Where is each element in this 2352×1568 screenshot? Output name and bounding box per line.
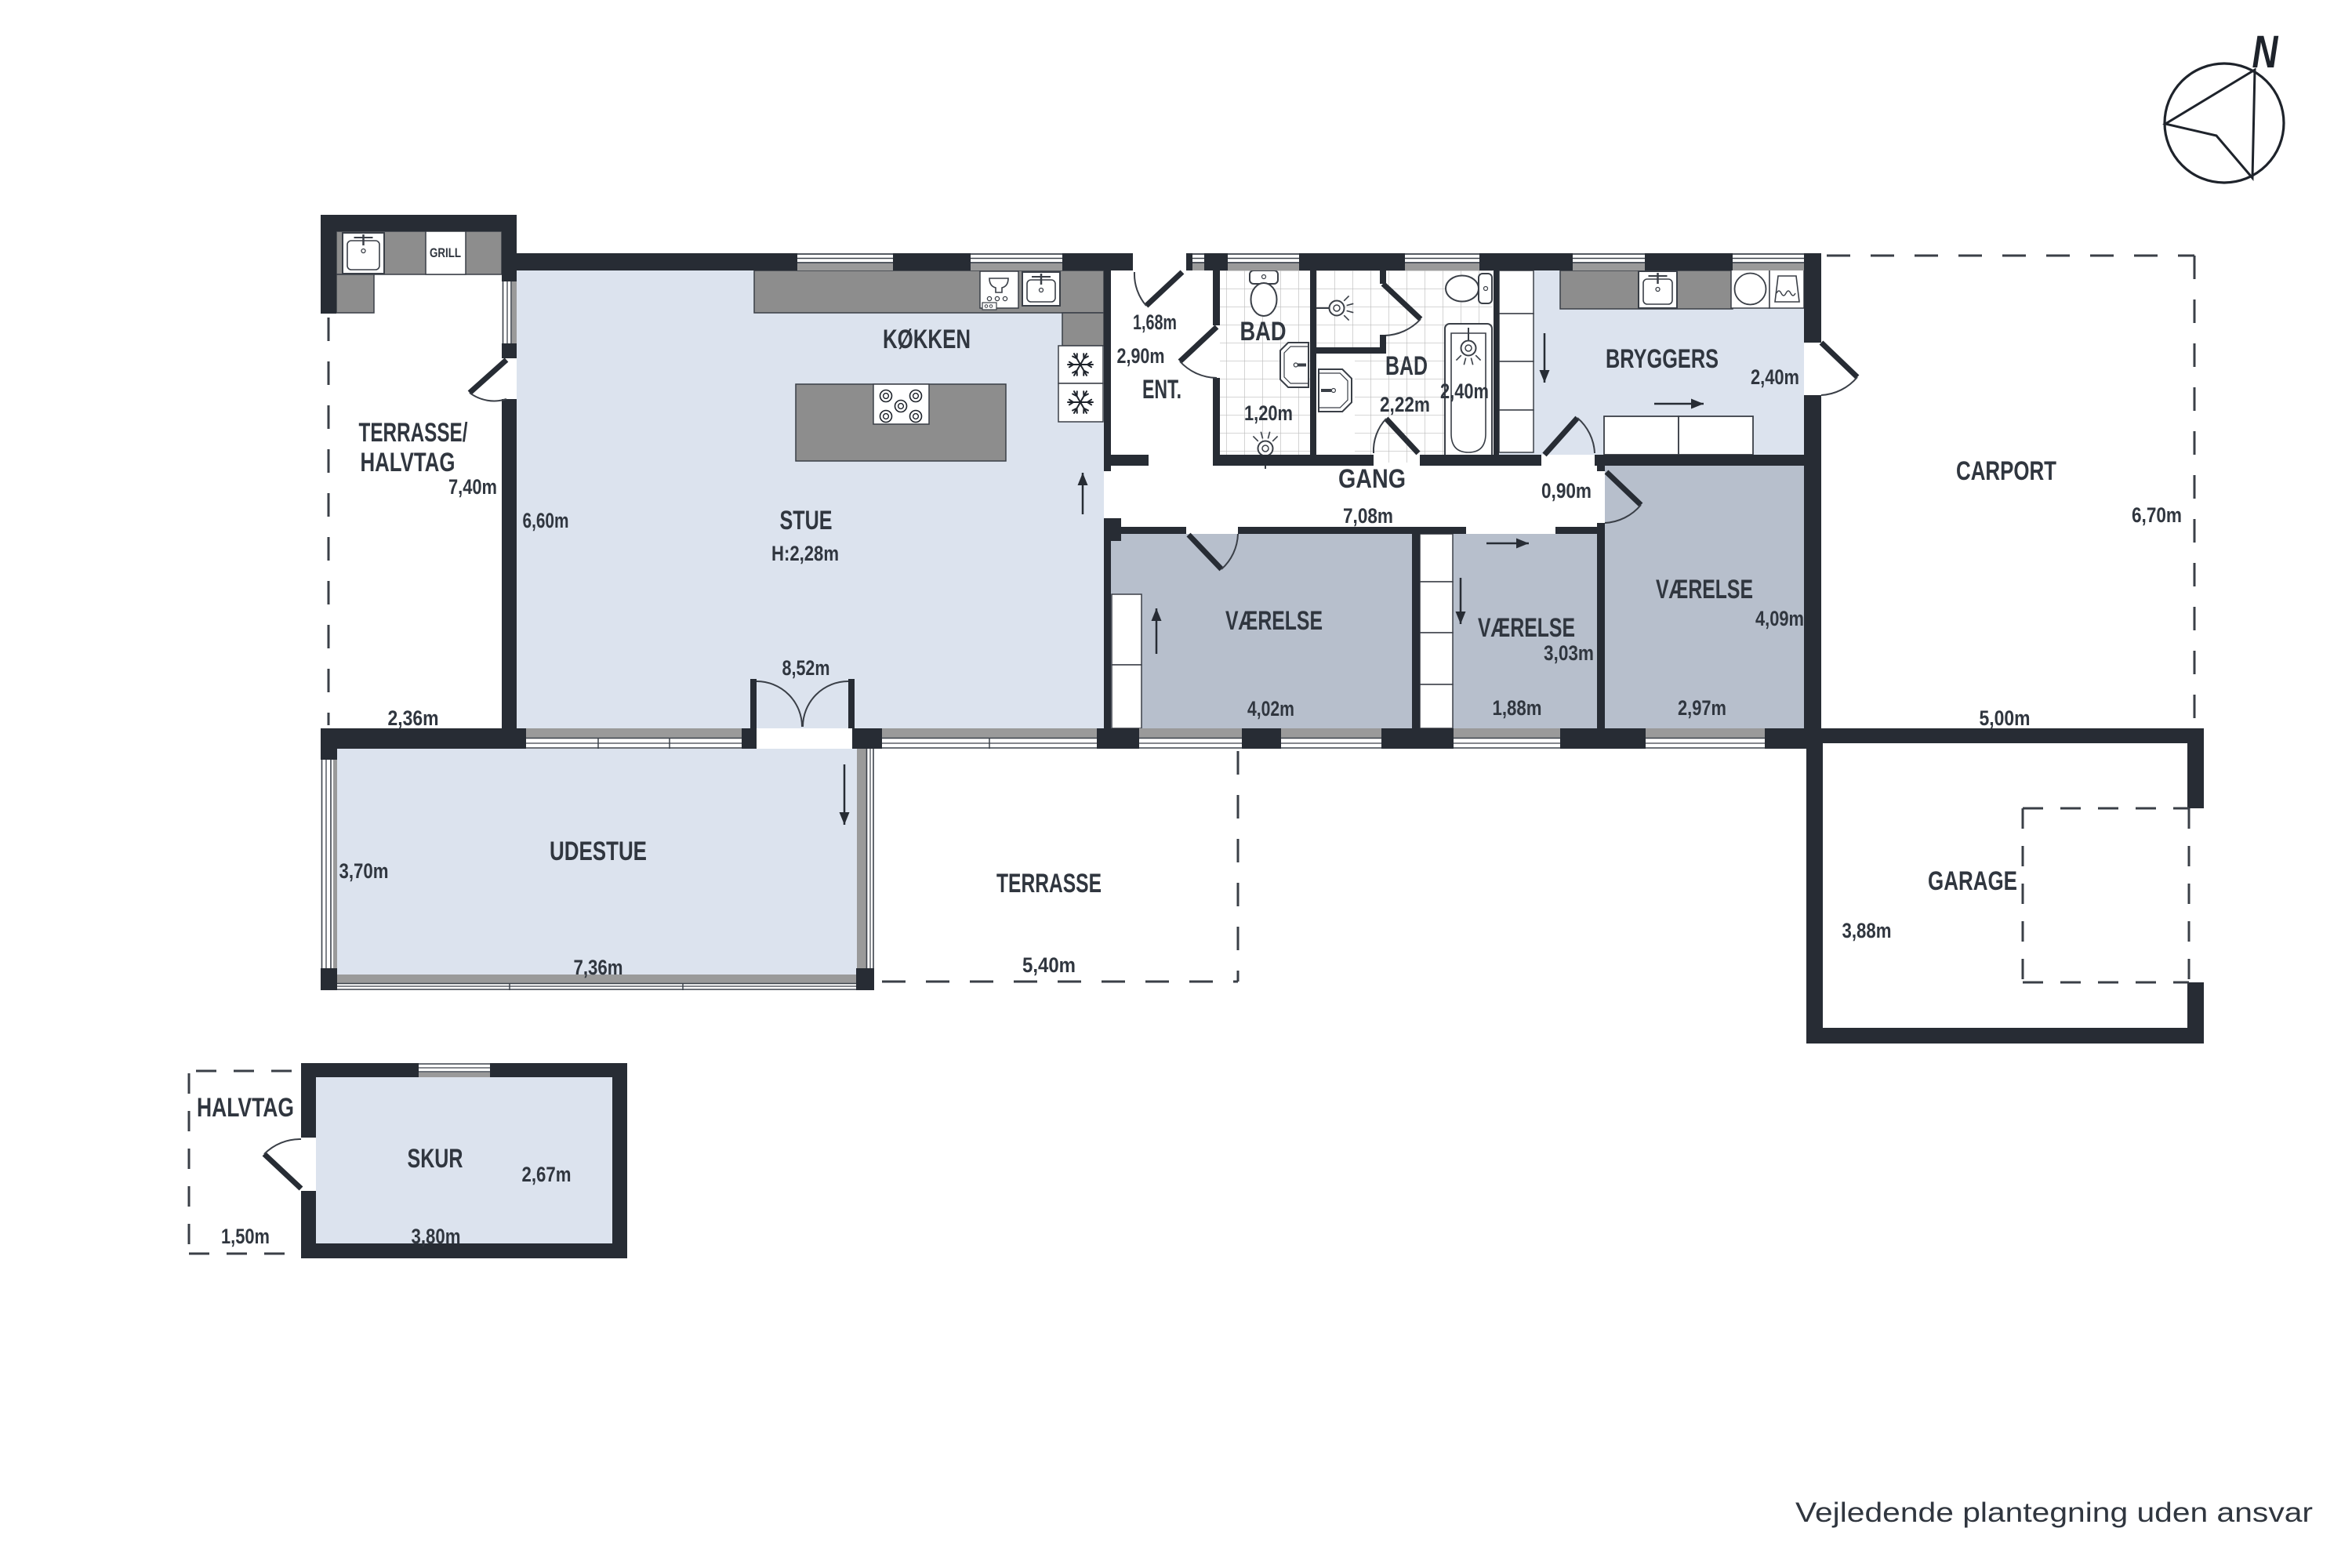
svg-text:3,88m: 3,88m: [1842, 919, 1892, 942]
svg-text:6,60m: 6,60m: [523, 509, 569, 532]
svg-text:6,70m: 6,70m: [2132, 503, 2182, 527]
svg-text:ENT.: ENT.: [1142, 375, 1181, 405]
svg-text:VÆRELSE: VÆRELSE: [1225, 606, 1323, 636]
svg-text:1,88m: 1,88m: [1493, 696, 1542, 720]
svg-text:2,22m: 2,22m: [1380, 393, 1430, 416]
svg-text:HALVTAG: HALVTAG: [361, 448, 456, 477]
svg-text:TERRASSE/: TERRASSE/: [359, 418, 468, 448]
svg-text:BRYGGERS: BRYGGERS: [1606, 344, 1719, 374]
svg-text:UDESTUE: UDESTUE: [550, 837, 647, 866]
svg-text:GANG: GANG: [1338, 464, 1406, 494]
svg-text:N: N: [2252, 27, 2279, 78]
svg-text:KØKKEN: KØKKEN: [883, 325, 971, 354]
svg-text:3,70m: 3,70m: [339, 859, 389, 883]
svg-text:0,90m: 0,90m: [1541, 479, 1592, 503]
svg-text:2,67m: 2,67m: [522, 1163, 572, 1186]
svg-text:4,02m: 4,02m: [1247, 697, 1294, 720]
svg-text:2,40m: 2,40m: [1751, 365, 1799, 389]
svg-text:STUE: STUE: [780, 506, 833, 535]
svg-text:1,20m: 1,20m: [1244, 401, 1293, 425]
svg-text:SKUR: SKUR: [408, 1144, 463, 1174]
svg-text:7,36m: 7,36m: [574, 956, 623, 979]
svg-text:VÆRELSE: VÆRELSE: [1656, 575, 1753, 604]
svg-text:HALVTAG: HALVTAG: [197, 1093, 294, 1123]
svg-text:5,00m: 5,00m: [1980, 706, 2031, 730]
svg-text:5,40m: 5,40m: [1022, 953, 1076, 977]
svg-text:TERRASSE: TERRASSE: [996, 869, 1102, 898]
svg-text:2,90m: 2,90m: [1117, 344, 1165, 368]
svg-text:BAD: BAD: [1385, 351, 1428, 381]
svg-text:2,97m: 2,97m: [1678, 696, 1726, 720]
svg-text:CARPORT: CARPORT: [1956, 456, 2056, 486]
svg-text:7,08m: 7,08m: [1343, 504, 1393, 528]
svg-text:8,52m: 8,52m: [782, 656, 830, 680]
svg-text:H:2,28m: H:2,28m: [771, 542, 839, 565]
svg-text:BAD: BAD: [1240, 317, 1287, 347]
svg-text:3,03m: 3,03m: [1544, 641, 1594, 665]
svg-text:1,68m: 1,68m: [1133, 310, 1177, 334]
svg-text:GARAGE: GARAGE: [1928, 866, 2017, 896]
svg-text:3,80m: 3,80m: [412, 1225, 461, 1248]
svg-text:7,40m: 7,40m: [448, 475, 497, 499]
svg-text:1,50m: 1,50m: [221, 1225, 270, 1248]
svg-text:2,36m: 2,36m: [388, 706, 439, 730]
svg-text:2,40m: 2,40m: [1440, 379, 1489, 403]
svg-text:VÆRELSE: VÆRELSE: [1478, 613, 1575, 643]
svg-text:GRILL: GRILL: [430, 245, 461, 260]
svg-text:4,09m: 4,09m: [1755, 607, 1804, 630]
svg-text:Vejledende plantegning uden an: Vejledende plantegning uden ansvar: [1795, 1497, 2313, 1528]
